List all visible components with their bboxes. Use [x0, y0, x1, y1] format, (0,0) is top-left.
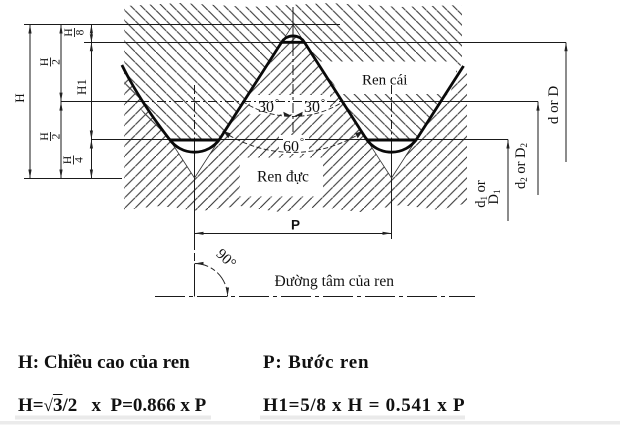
- svg-text:°: °: [275, 98, 279, 109]
- svg-text:2: 2: [51, 133, 63, 139]
- svg-text:30: 30: [258, 99, 274, 116]
- svg-text:°: °: [321, 98, 325, 109]
- svg-text:H: H: [39, 132, 51, 140]
- svg-text:H: H: [62, 156, 74, 164]
- svg-text:°: °: [300, 137, 304, 148]
- svg-text:Ren đực: Ren đực: [257, 169, 309, 186]
- svg-text:Đường tâm của ren: Đường tâm của ren: [275, 273, 395, 290]
- svg-text:d2 or D2: d2 or D2: [513, 143, 529, 189]
- svg-text:H: H: [12, 93, 27, 102]
- svg-text:d or D: d or D: [546, 86, 562, 124]
- svg-text:60: 60: [283, 139, 299, 156]
- svg-text:H: H: [63, 28, 75, 36]
- svg-text:2: 2: [51, 59, 63, 65]
- svg-text:P: P: [291, 218, 300, 233]
- svg-text:4: 4: [74, 157, 86, 163]
- svg-text:Ren cái: Ren cái: [362, 73, 407, 89]
- svg-text:30: 30: [304, 99, 320, 116]
- svg-text:90°: 90°: [213, 246, 239, 272]
- svg-text:H1: H1: [74, 79, 89, 95]
- svg-text:8: 8: [75, 29, 87, 35]
- svg-text:H: H: [39, 58, 51, 66]
